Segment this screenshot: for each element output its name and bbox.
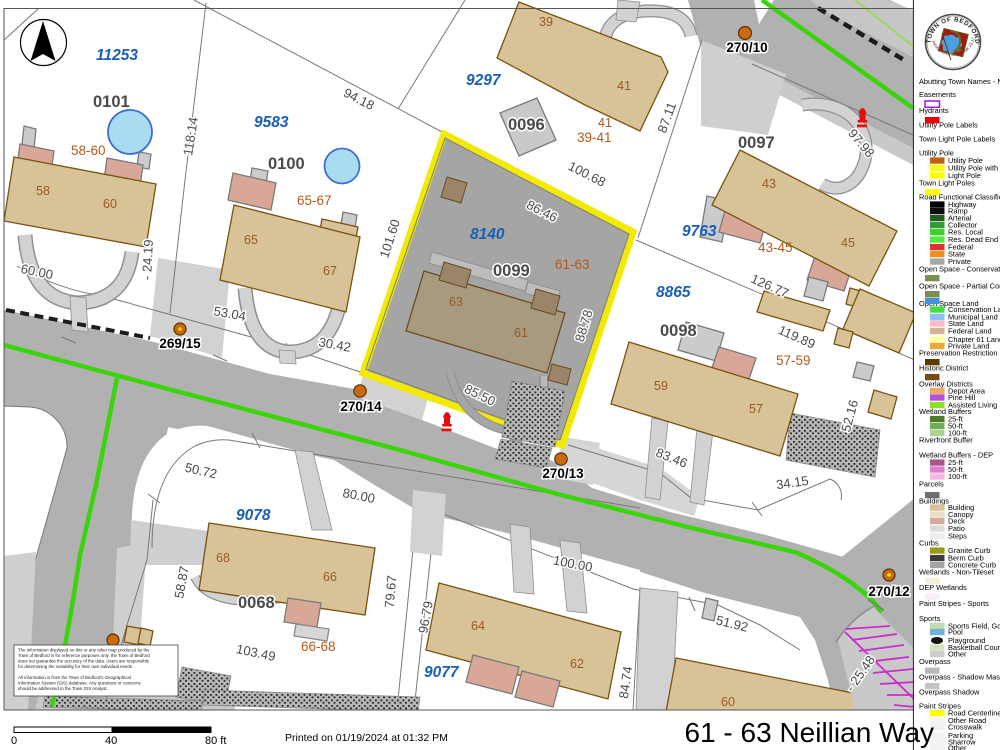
svg-text:270/13: 270/13 [542, 466, 584, 481]
svg-text:11253: 11253 [96, 47, 138, 64]
svg-text:Town of Bedford is for referen: Town of Bedford is for reference purpose… [18, 653, 150, 658]
svg-text:9297: 9297 [466, 72, 502, 89]
svg-text:Overpass: Overpass [919, 657, 951, 666]
svg-text:Other: Other [948, 744, 967, 750]
svg-text:Town Light Pole Labels: Town Light Pole Labels [919, 135, 995, 144]
svg-text:45: 45 [841, 236, 855, 250]
svg-text:100-ft: 100-ft [948, 472, 967, 481]
svg-text:Parcels: Parcels [919, 480, 944, 489]
svg-text:DEP Wetlands: DEP Wetlands [919, 583, 967, 592]
svg-text:- 24.19: - 24.19 [139, 239, 156, 280]
svg-text:59: 59 [654, 379, 668, 393]
svg-text:66-68: 66-68 [301, 639, 336, 654]
svg-text:0099: 0099 [493, 262, 530, 280]
svg-text:Assisted Living: Assisted Living [948, 401, 997, 410]
svg-text:Other: Other [948, 650, 967, 659]
svg-text:40: 40 [105, 735, 117, 747]
svg-text:270/12: 270/12 [868, 584, 909, 599]
svg-text:65-67: 65-67 [297, 193, 332, 208]
svg-text:60: 60 [721, 695, 735, 709]
svg-text:57-59: 57-59 [776, 353, 811, 368]
svg-text:Light Pole: Light Pole [948, 171, 981, 180]
svg-text:270/10: 270/10 [726, 40, 767, 55]
svg-text:66: 66 [323, 570, 337, 584]
svg-text:Information System (GIS) datab: Information System (GIS) database. Any q… [18, 681, 142, 686]
svg-text:65: 65 [244, 233, 258, 247]
svg-text:60: 60 [103, 197, 117, 211]
svg-text:58-60: 58-60 [71, 143, 106, 158]
svg-text:Easements: Easements [919, 90, 956, 99]
svg-text:80 ft: 80 ft [205, 735, 226, 747]
svg-text:270/14: 270/14 [340, 399, 382, 414]
svg-text:61 - 63 Neillian Way: 61 - 63 Neillian Way [685, 717, 935, 748]
svg-text:Curbs: Curbs [919, 539, 939, 548]
svg-text:Open Space - Partial Conse: Open Space - Partial Conse [919, 282, 1000, 291]
svg-text:43: 43 [762, 177, 776, 191]
svg-text:269/15: 269/15 [159, 336, 201, 351]
svg-text:0101: 0101 [93, 93, 130, 111]
svg-text:67: 67 [323, 264, 337, 278]
svg-text:57: 57 [749, 402, 763, 416]
svg-text:63: 63 [449, 295, 463, 309]
svg-text:39-41: 39-41 [577, 130, 612, 145]
svg-text:9078: 9078 [236, 507, 271, 524]
svg-text:61: 61 [514, 326, 528, 340]
svg-text:Private Land: Private Land [948, 342, 990, 351]
svg-text:8865: 8865 [656, 284, 691, 301]
svg-text:Private: Private [948, 257, 971, 266]
svg-text:Concrete Curb: Concrete Curb [948, 561, 996, 570]
svg-text:0096: 0096 [508, 116, 545, 134]
svg-text:for determining the suitabilit: for determining the suitability for thei… [18, 664, 133, 669]
svg-text:The information displayed on t: The information displayed on this or any… [18, 648, 150, 653]
svg-text:Printed on 01/19/2024 at 01:3: Printed on 01/19/2024 at 01:32 PM [285, 732, 448, 744]
svg-text:0097: 0097 [738, 134, 775, 152]
svg-text:0098: 0098 [660, 322, 697, 340]
svg-text:should be addressed to the Tow: should be addressed to the Town GIS Anal… [18, 686, 108, 691]
svg-text:68: 68 [216, 551, 230, 565]
svg-text:100-ft: 100-ft [948, 429, 967, 438]
svg-text:41: 41 [617, 79, 631, 93]
svg-text:0068: 0068 [238, 594, 275, 612]
svg-text:43-45: 43-45 [758, 240, 793, 255]
svg-text:Abutting Town Names - Nort: Abutting Town Names - Nort [919, 77, 1000, 86]
svg-text:41: 41 [598, 116, 612, 130]
svg-text:All information is from the To: All information is from the Town of Bedf… [18, 675, 131, 680]
svg-text:79.67: 79.67 [382, 575, 400, 609]
svg-text:9583: 9583 [254, 114, 289, 131]
svg-text:Overpass - Shadow Mask: Overpass - Shadow Mask [919, 673, 1000, 682]
svg-text:58: 58 [36, 184, 50, 198]
svg-text:61-63: 61-63 [555, 257, 590, 272]
svg-text:Steps: Steps [948, 532, 967, 541]
svg-text:9077: 9077 [424, 664, 460, 681]
svg-text:Paint Stripes - Sports: Paint Stripes - Sports [919, 599, 989, 608]
svg-text:0: 0 [11, 735, 17, 747]
svg-text:9763: 9763 [682, 223, 717, 240]
svg-text:0100: 0100 [268, 155, 305, 173]
svg-text:8140: 8140 [470, 226, 505, 243]
svg-text:62: 62 [570, 657, 584, 671]
svg-text:Sports: Sports [919, 614, 941, 623]
svg-text:39: 39 [539, 15, 553, 29]
svg-text:does not guarantee the accurac: does not guarantee the accuracy of the d… [18, 659, 150, 664]
svg-text:64: 64 [471, 619, 485, 633]
